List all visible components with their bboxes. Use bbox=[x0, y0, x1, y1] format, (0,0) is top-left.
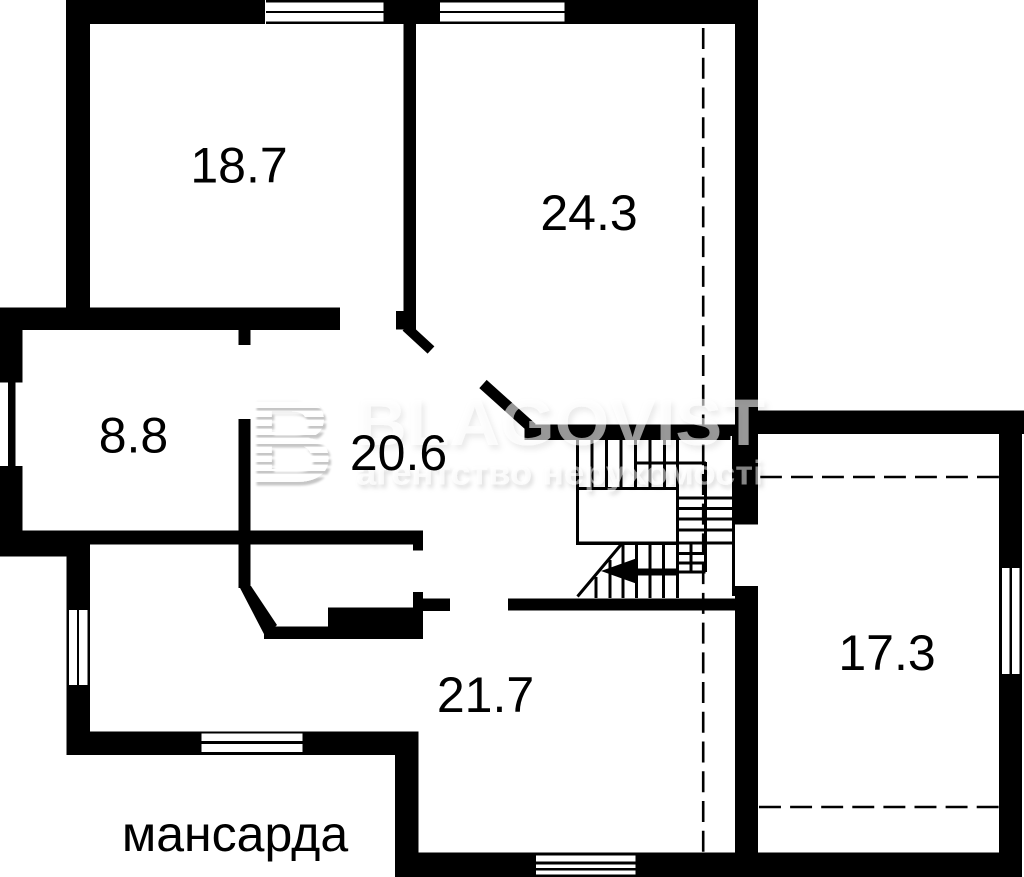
svg-text:20.6: 20.6 bbox=[350, 425, 447, 481]
svg-text:8.8: 8.8 bbox=[99, 408, 169, 464]
svg-text:17.3: 17.3 bbox=[838, 625, 935, 681]
svg-text:B: B bbox=[246, 372, 334, 508]
svg-text:21.7: 21.7 bbox=[437, 667, 534, 723]
svg-text:24.3: 24.3 bbox=[540, 185, 637, 241]
svg-text:18.7: 18.7 bbox=[190, 138, 287, 194]
svg-text:мансарда: мансарда bbox=[122, 806, 348, 862]
